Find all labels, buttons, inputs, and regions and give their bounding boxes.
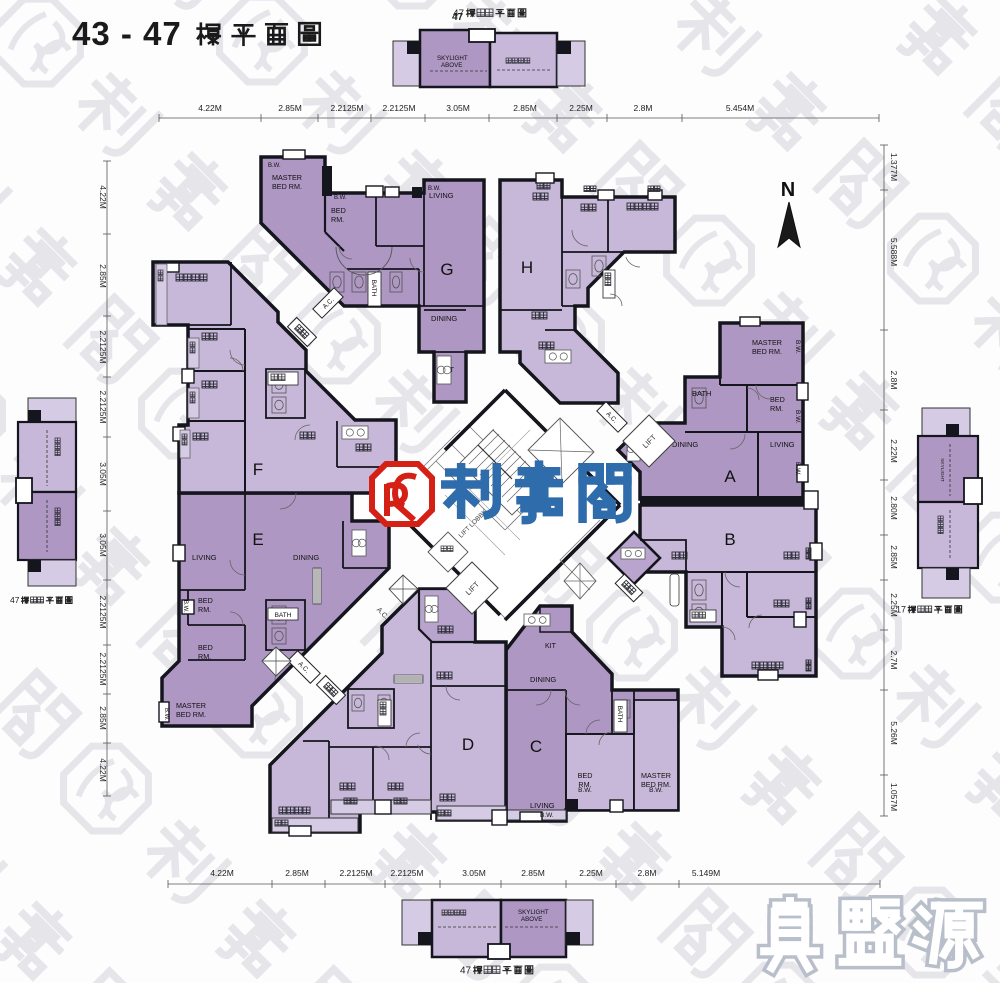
svg-text:2.85M: 2.85M	[278, 103, 302, 113]
svg-text:H: H	[521, 258, 533, 277]
svg-text:BATH: BATH	[692, 389, 711, 398]
svg-text:5.26M: 5.26M	[889, 721, 899, 745]
svg-text:2.85M: 2.85M	[98, 706, 108, 730]
svg-text:47: 47	[10, 595, 20, 605]
svg-text:B: B	[724, 530, 735, 549]
svg-text:1.057M: 1.057M	[889, 783, 899, 811]
svg-text:4.22M: 4.22M	[98, 758, 108, 782]
svg-text:3.05M: 3.05M	[98, 533, 108, 557]
svg-text:A: A	[724, 467, 736, 486]
svg-text:SKYLIGHT: SKYLIGHT	[437, 55, 468, 62]
svg-text:2.8M: 2.8M	[634, 103, 653, 113]
svg-text:BATH: BATH	[370, 280, 377, 297]
svg-text:2.2125M: 2.2125M	[98, 652, 108, 685]
svg-text:2.85M: 2.85M	[285, 868, 309, 878]
svg-text:KIT: KIT	[545, 643, 557, 650]
svg-text:G: G	[440, 260, 453, 279]
svg-text:2.25M: 2.25M	[569, 103, 593, 113]
svg-text:BED RM.: BED RM.	[272, 182, 302, 191]
svg-text:B.W.: B.W.	[794, 410, 801, 424]
svg-text:2.85M: 2.85M	[513, 103, 537, 113]
svg-text:SKYLIGHT: SKYLIGHT	[939, 458, 945, 482]
svg-text:B.W.: B.W.	[182, 600, 188, 613]
svg-text:BED RM.: BED RM.	[176, 710, 206, 719]
svg-text:BATH: BATH	[275, 612, 292, 619]
svg-text:43 - 47: 43 - 47	[72, 15, 182, 52]
svg-text:F: F	[253, 460, 263, 479]
svg-text:4.22M: 4.22M	[98, 185, 108, 209]
svg-text:5.149M: 5.149M	[692, 868, 720, 878]
svg-text:RM.: RM.	[331, 215, 344, 224]
svg-text:BED RM.: BED RM.	[752, 347, 782, 356]
svg-text:2.8M: 2.8M	[638, 868, 657, 878]
svg-text:17: 17	[896, 605, 906, 615]
svg-text:BED: BED	[331, 206, 346, 215]
svg-text:MASTER: MASTER	[752, 338, 782, 347]
svg-text:B.W.: B.W.	[334, 195, 347, 201]
svg-text:2.2125M: 2.2125M	[98, 330, 108, 363]
svg-text:E: E	[252, 530, 263, 549]
svg-text:RM.: RM.	[198, 605, 211, 614]
svg-text:LIVING: LIVING	[530, 801, 555, 810]
svg-text:BED: BED	[198, 643, 213, 652]
svg-text:2.2125M: 2.2125M	[390, 868, 423, 878]
svg-text:2.8M: 2.8M	[889, 371, 899, 390]
svg-text:B.W.: B.W.	[794, 462, 801, 476]
svg-text:BED: BED	[770, 395, 785, 404]
svg-text:2.7M: 2.7M	[889, 651, 899, 670]
svg-text:BED: BED	[198, 596, 213, 605]
svg-text:DINING: DINING	[293, 553, 319, 562]
svg-text:B.W.: B.W.	[578, 787, 592, 794]
svg-text:B.W.: B.W.	[649, 787, 663, 794]
svg-text:LIVING: LIVING	[770, 440, 795, 449]
svg-text:ABOVE: ABOVE	[521, 916, 542, 923]
svg-text:SKYLIGHT: SKYLIGHT	[518, 909, 549, 916]
svg-text:2.2125M: 2.2125M	[330, 103, 363, 113]
svg-text:47: 47	[460, 966, 472, 977]
svg-text:2.2125M: 2.2125M	[382, 103, 415, 113]
svg-text:3.05M: 3.05M	[462, 868, 486, 878]
svg-text:MASTER: MASTER	[272, 173, 302, 182]
svg-text:2.25M: 2.25M	[579, 868, 603, 878]
svg-text:B.W.: B.W.	[540, 812, 554, 819]
svg-text:LIVING: LIVING	[429, 191, 454, 200]
svg-text:2.22M: 2.22M	[889, 439, 899, 463]
svg-text:RM.: RM.	[770, 404, 783, 413]
svg-text:3.05M: 3.05M	[98, 462, 108, 486]
svg-text:2.80M: 2.80M	[889, 496, 899, 520]
svg-text:B.W.: B.W.	[794, 340, 801, 354]
svg-text:3.05M: 3.05M	[446, 103, 470, 113]
svg-text:47: 47	[453, 9, 465, 20]
svg-text:D: D	[462, 735, 474, 754]
svg-text:B.W.: B.W.	[268, 163, 281, 169]
svg-text:MASTER: MASTER	[176, 701, 206, 710]
svg-text:5.588M: 5.588M	[889, 238, 899, 266]
svg-text:4.22M: 4.22M	[198, 103, 222, 113]
svg-text:DINING: DINING	[530, 675, 556, 684]
svg-text:B.W.: B.W.	[163, 708, 169, 721]
svg-text:2.2125M: 2.2125M	[339, 868, 372, 878]
svg-text:2.85M: 2.85M	[98, 264, 108, 288]
svg-text:BATH: BATH	[616, 706, 623, 723]
svg-text:MASTER: MASTER	[641, 771, 671, 780]
svg-text:LIVING: LIVING	[192, 553, 217, 562]
svg-text:2.85M: 2.85M	[521, 868, 545, 878]
svg-text:4.22M: 4.22M	[210, 868, 234, 878]
svg-text:2.2125M: 2.2125M	[98, 595, 108, 628]
svg-text:BED: BED	[578, 771, 593, 780]
svg-text:N: N	[781, 179, 795, 201]
svg-text:1.377M: 1.377M	[889, 153, 899, 181]
svg-text:2.2125M: 2.2125M	[98, 390, 108, 423]
svg-text:ABOVE: ABOVE	[441, 62, 462, 69]
svg-text:RM.: RM.	[198, 652, 211, 661]
svg-text:C: C	[530, 737, 542, 756]
svg-text:DINING: DINING	[672, 440, 698, 449]
svg-text:DINING: DINING	[431, 314, 457, 323]
svg-text:5.454M: 5.454M	[726, 103, 754, 113]
svg-text:2.85M: 2.85M	[889, 545, 899, 569]
